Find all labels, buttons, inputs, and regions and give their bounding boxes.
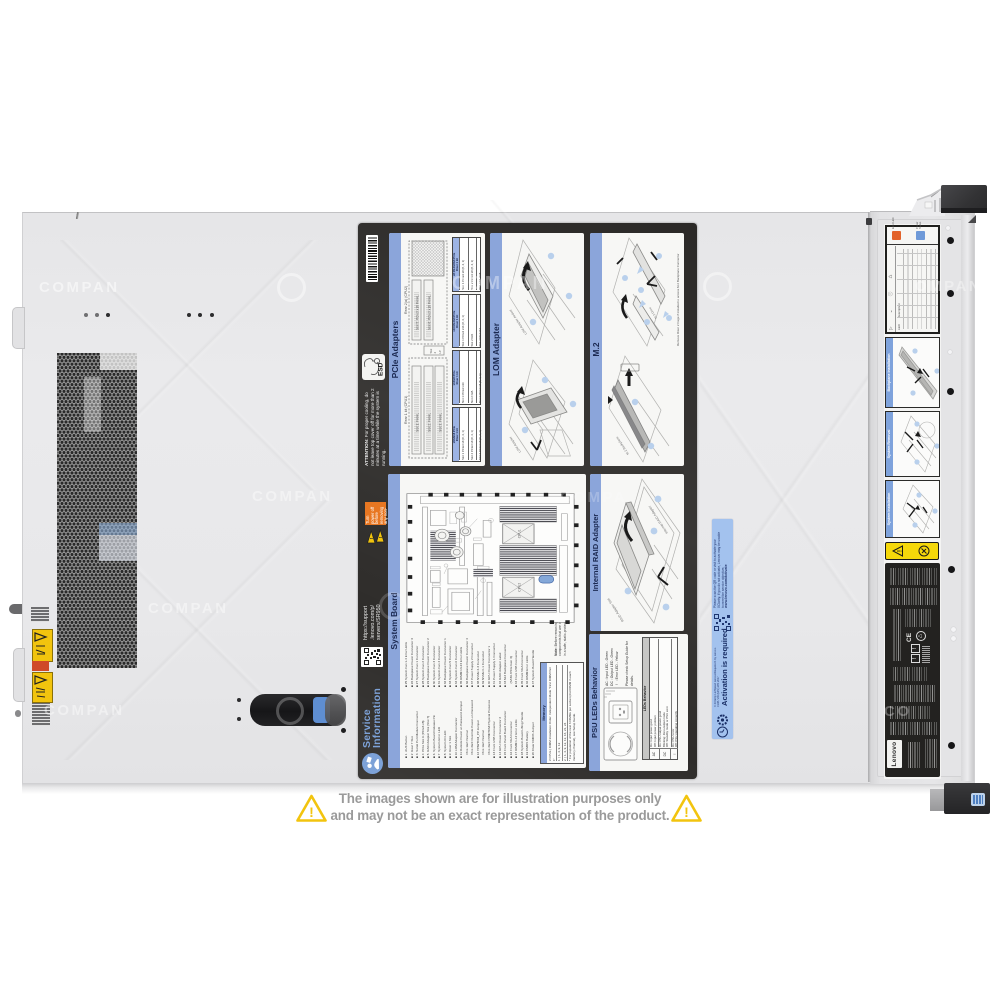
- svg-text:Slot 3: FH/HL: Slot 3: FH/HL: [439, 413, 443, 432]
- svg-text:!: !: [684, 804, 689, 820]
- svg-text:Slot 6: PCIe3 x16 FH/HL: Slot 6: PCIe3 x16 FH/HL: [428, 295, 432, 330]
- svg-text:RAID Adapter Slot: RAID Adapter Slot: [606, 597, 624, 622]
- svg-text:Slot 1: FH/HL: Slot 1: FH/HL: [416, 413, 420, 432]
- svg-text:CPU1: CPU1: [517, 529, 521, 538]
- svg-text:!: !: [369, 537, 374, 539]
- svg-text:LOM Adapter Airduct: LOM Adapter Airduct: [508, 309, 527, 336]
- svg-text:Rear 2(a) (CPU2): Rear 2(a) (CPU2): [404, 286, 408, 314]
- svg-text:M.2 Backplane: M.2 Backplane: [615, 436, 630, 456]
- svg-text:LP: LP: [438, 350, 442, 354]
- svg-text:!: !: [897, 550, 904, 552]
- svg-text:LOM Adapter: LOM Adapter: [508, 435, 522, 454]
- svg-text:!: !: [309, 804, 314, 820]
- svg-text:!: !: [378, 536, 383, 538]
- svg-text:ESD: ESD: [378, 362, 385, 376]
- svg-text:4: 4: [433, 352, 437, 354]
- svg-text:Remove Riser 2 Cage if install: Remove Riser 2 Cage if installed to acce…: [676, 253, 680, 346]
- svg-text:Slot 2: FH/HL: Slot 2: FH/HL: [428, 413, 432, 432]
- svg-text:Rear 1 kit (CPU1): Rear 1 kit (CPU1): [404, 396, 408, 424]
- svg-text:CPU2: CPU2: [517, 583, 521, 592]
- svg-text:Slot 5: PCIe3 x16 FH/HL: Slot 5: PCIe3 x16 FH/HL: [416, 295, 420, 330]
